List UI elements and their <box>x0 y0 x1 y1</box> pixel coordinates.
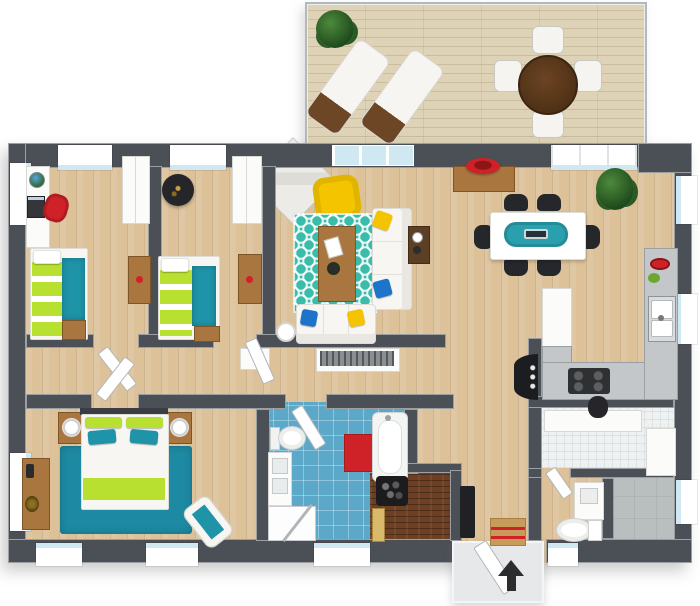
bolster-pillow-lime <box>126 417 163 428</box>
pillow-teal <box>129 429 158 445</box>
table-plant-icon <box>327 262 340 275</box>
window-master-bottom-2 <box>146 543 198 566</box>
tv-cabinet-top <box>320 351 394 366</box>
window-dining-top <box>551 145 637 170</box>
sink-basin <box>651 320 673 337</box>
patio-table <box>518 55 578 115</box>
table-lamp <box>63 419 80 436</box>
window-kitchen-right <box>676 294 697 344</box>
window-wc-bottom <box>548 543 578 566</box>
bathtub-basin <box>378 420 402 474</box>
vanity-sink <box>272 458 288 474</box>
bed-blanket-lime <box>160 270 192 336</box>
globe-icon <box>29 172 45 188</box>
patio-chair <box>532 26 564 54</box>
wall-hall-master-a <box>26 394 92 409</box>
tub-faucet-icon <box>385 415 391 421</box>
storage-floor <box>612 476 674 541</box>
toilet-tank <box>588 520 602 541</box>
wall-bedroom2-living <box>262 166 276 348</box>
throw-pillow-yellow <box>347 309 366 328</box>
wall-hall-bath-right <box>326 394 454 409</box>
greens <box>648 273 660 283</box>
dining-chair <box>474 225 491 249</box>
bed-blanket-lime <box>32 262 62 336</box>
dining-chair <box>504 194 528 211</box>
vanity-sink <box>272 478 288 494</box>
fridge-cabinet <box>542 288 572 348</box>
sauna-heater <box>376 476 408 506</box>
dark-kettle <box>588 396 608 418</box>
bed-pillow <box>33 250 61 264</box>
table-lamp <box>171 419 188 436</box>
dining-chair <box>504 258 528 276</box>
entrance-arrow-icon <box>496 560 526 594</box>
bed-band-lime <box>83 478 165 500</box>
dresser-plant-icon <box>25 496 39 512</box>
wardrobe <box>232 156 262 224</box>
dining-plant-icon <box>596 168 634 210</box>
corner-shower <box>268 506 316 541</box>
window-bedroom2-top <box>170 145 226 170</box>
laptop <box>27 196 45 218</box>
coffee-press <box>412 232 423 243</box>
laundry-cabinet <box>646 428 676 476</box>
red-bowl <box>650 258 670 270</box>
bed-pillow <box>161 258 189 272</box>
throw-pillow-blue <box>300 309 319 328</box>
desk-accessory-red <box>246 276 253 283</box>
wall-laundry-wc-a <box>528 468 542 478</box>
bed-throw-teal <box>62 258 85 320</box>
nightstand <box>194 326 220 342</box>
red-bath-mat <box>344 434 374 472</box>
mug <box>413 246 421 254</box>
sauna-bench <box>372 508 385 542</box>
window-bathroom-bottom <box>314 543 370 566</box>
patio-chair <box>574 60 602 92</box>
desk-accessory-red <box>136 276 143 283</box>
window-bedroom1-top <box>58 145 112 170</box>
bolster-pillow-lime <box>85 417 122 428</box>
floor-plan-canvas <box>0 0 700 606</box>
dresser-decor <box>26 464 34 478</box>
wall-hall-master-bath <box>138 394 286 409</box>
wc-sink <box>580 488 598 504</box>
faucet-icon <box>658 315 664 321</box>
hall-bench <box>460 486 475 538</box>
glass-door-deck <box>332 145 414 166</box>
centerpiece-tray <box>524 229 548 239</box>
black-console <box>514 354 538 400</box>
toilet <box>556 518 592 542</box>
red-fruit-bowl <box>466 158 500 174</box>
striped-doormat <box>490 518 526 546</box>
window-storage-right <box>676 480 697 524</box>
round-side-table <box>276 322 296 342</box>
bed-throw-teal <box>192 266 216 326</box>
round-black-rug <box>162 174 194 206</box>
dining-chair <box>537 258 561 276</box>
wardrobe <box>122 156 150 224</box>
window-dining-right <box>676 176 697 224</box>
window-master-bottom-1 <box>36 543 82 566</box>
deck-plant-icon <box>316 10 354 48</box>
wall-corner-jut <box>638 143 692 173</box>
pillow-teal <box>87 429 116 445</box>
dining-chair <box>537 194 561 211</box>
cooktop <box>568 368 610 394</box>
nightstand <box>62 320 86 340</box>
